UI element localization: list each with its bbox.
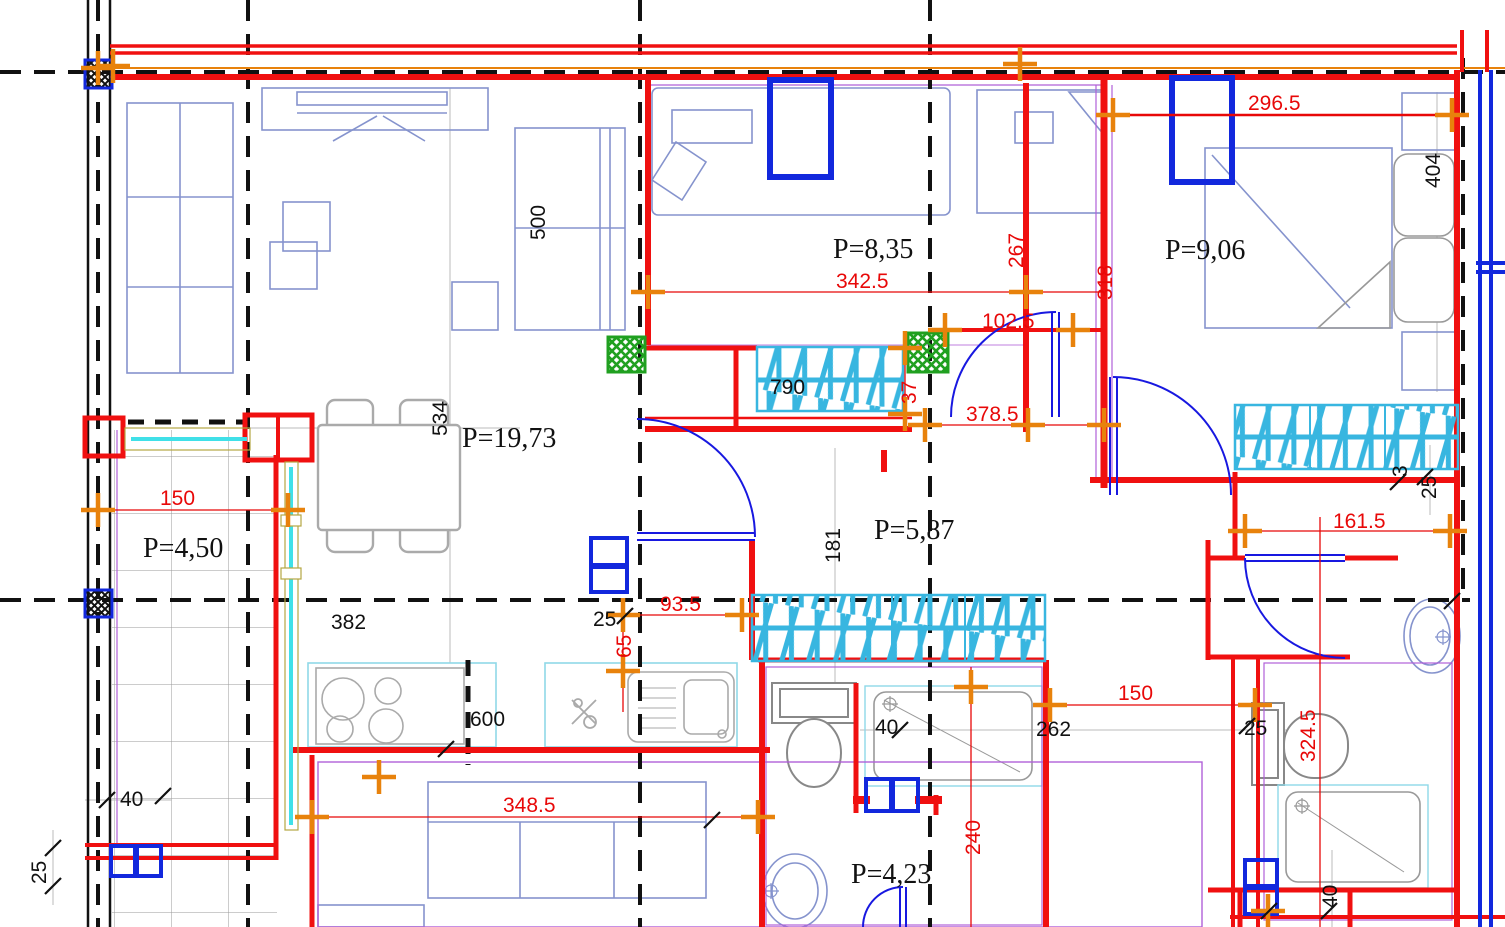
door-bathroom-bottom bbox=[863, 887, 906, 927]
floor-plan-canvas: P=19,73 P=4,50 P=8,35 P=9,06 P=5,87 P=4,… bbox=[0, 0, 1505, 927]
drain-icon bbox=[882, 696, 898, 712]
kitchen-counters bbox=[308, 663, 737, 747]
dim-790: 790 bbox=[770, 376, 805, 399]
room-label-bedroom-right: P=9,06 bbox=[1165, 235, 1245, 266]
furniture-bed-middle bbox=[652, 88, 1104, 215]
dim-65: 65 bbox=[613, 635, 636, 658]
dim-25-hall: 25 bbox=[593, 608, 616, 631]
dim-25-left: 25 bbox=[28, 861, 51, 884]
shower-2 bbox=[1278, 785, 1428, 888]
shaft-green-1 bbox=[608, 337, 645, 372]
room-label-living: P=19,73 bbox=[462, 423, 556, 454]
dim-40-wc: 40 bbox=[1319, 885, 1342, 908]
dim-37: 37 bbox=[898, 381, 921, 404]
dim-296-5: 296.5 bbox=[1248, 92, 1301, 115]
door-living-hall bbox=[637, 419, 755, 540]
room-label-bedroom-middle: P=8,35 bbox=[833, 234, 913, 265]
dim-267: 267 bbox=[1005, 233, 1028, 268]
door-wc-2 bbox=[1245, 555, 1345, 658]
furniture-living bbox=[127, 88, 625, 373]
dim-150-corridor: 150 bbox=[1118, 682, 1153, 705]
room-labels: P=19,73 P=4,50 P=8,35 P=9,06 P=5,87 P=4,… bbox=[143, 234, 1245, 890]
dim-40-shower: 40 bbox=[875, 716, 898, 739]
dim-348-5: 348.5 bbox=[503, 794, 556, 817]
dim-378-5: 378.5 bbox=[966, 403, 1019, 426]
dim-3: 3 bbox=[1389, 465, 1412, 477]
dim-25-wardrobe: 25 bbox=[1418, 476, 1441, 499]
wardrobe-hatched-3 bbox=[752, 595, 1045, 661]
dim-500: 500 bbox=[527, 205, 550, 240]
dim-324-5: 324.5 bbox=[1297, 709, 1320, 762]
wardrobe-hatched-2 bbox=[1235, 405, 1458, 469]
dimension-lines bbox=[98, 115, 1457, 927]
faucet-icon bbox=[1435, 629, 1451, 645]
dim-40-balcony: 40 bbox=[120, 788, 143, 811]
dim-404: 404 bbox=[1422, 153, 1445, 188]
drain-icon bbox=[1294, 798, 1310, 814]
dim-382: 382 bbox=[331, 611, 366, 634]
dim-262: 262 bbox=[1036, 718, 1071, 741]
room-label-hall: P=5,87 bbox=[874, 515, 954, 546]
room-label-bathroom: P=4,23 bbox=[851, 859, 931, 890]
dim-161-5: 161.5 bbox=[1333, 510, 1386, 533]
dim-150-balcony: 150 bbox=[160, 487, 195, 510]
floor-plan-drawing: P=19,73 P=4,50 P=8,35 P=9,06 P=5,87 P=4,… bbox=[0, 0, 1505, 927]
dim-102-5: 102.5 bbox=[982, 310, 1035, 333]
dim-600: 600 bbox=[470, 708, 505, 731]
washbasin-2 bbox=[1404, 599, 1460, 673]
dim-93-5: 93.5 bbox=[660, 593, 701, 616]
room-label-balcony: P=4,50 bbox=[143, 533, 223, 564]
dim-342-5: 342.5 bbox=[836, 270, 889, 293]
dim-181: 181 bbox=[822, 528, 845, 563]
shaft-dark-2 bbox=[85, 590, 112, 617]
dim-240: 240 bbox=[962, 820, 985, 855]
dim-534: 534 bbox=[429, 401, 452, 436]
toilet-1 bbox=[772, 683, 856, 787]
washbasin-1 bbox=[763, 854, 827, 927]
dim-25-wc: 25 bbox=[1244, 717, 1267, 740]
shaft-green-2 bbox=[908, 333, 948, 372]
dim-318: 318 bbox=[1094, 265, 1117, 300]
